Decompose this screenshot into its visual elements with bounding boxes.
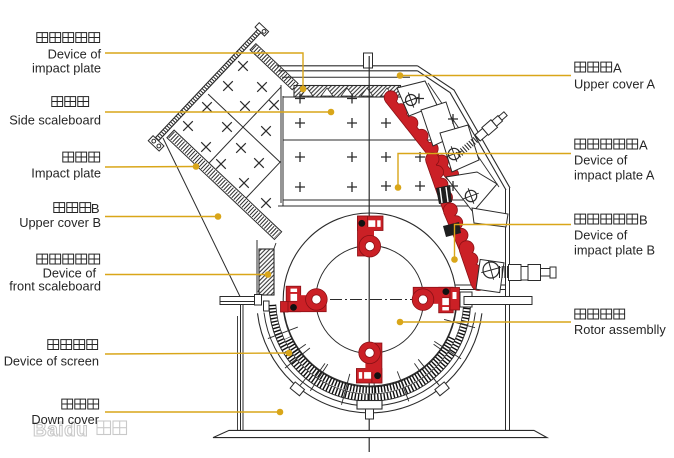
svg-text:B: B <box>91 201 100 216</box>
svg-text:Device of screen: Device of screen <box>4 354 99 369</box>
svg-text:Device of: Device of <box>48 47 102 62</box>
svg-text:Down cover: Down cover <box>31 412 99 427</box>
svg-text:Device of: Device of <box>574 228 628 243</box>
svg-text:front scaleboard: front scaleboard <box>9 279 101 294</box>
svg-text:B: B <box>639 213 648 228</box>
svg-text:Impact plate: Impact plate <box>31 166 101 181</box>
svg-text:A: A <box>639 138 648 153</box>
svg-text:impact plate A: impact plate A <box>574 168 655 183</box>
svg-text:Device of: Device of <box>574 153 628 168</box>
svg-text:impact plate: impact plate <box>32 61 101 76</box>
svg-text:impact plate B: impact plate B <box>574 243 655 258</box>
svg-text:A: A <box>613 61 622 76</box>
svg-text:Upper cover A: Upper cover A <box>574 77 656 92</box>
svg-text:Rotor assemblly: Rotor assemblly <box>574 322 666 337</box>
svg-text:Side scaleboard: Side scaleboard <box>9 113 101 128</box>
svg-text:Upper cover B: Upper cover B <box>19 215 101 230</box>
